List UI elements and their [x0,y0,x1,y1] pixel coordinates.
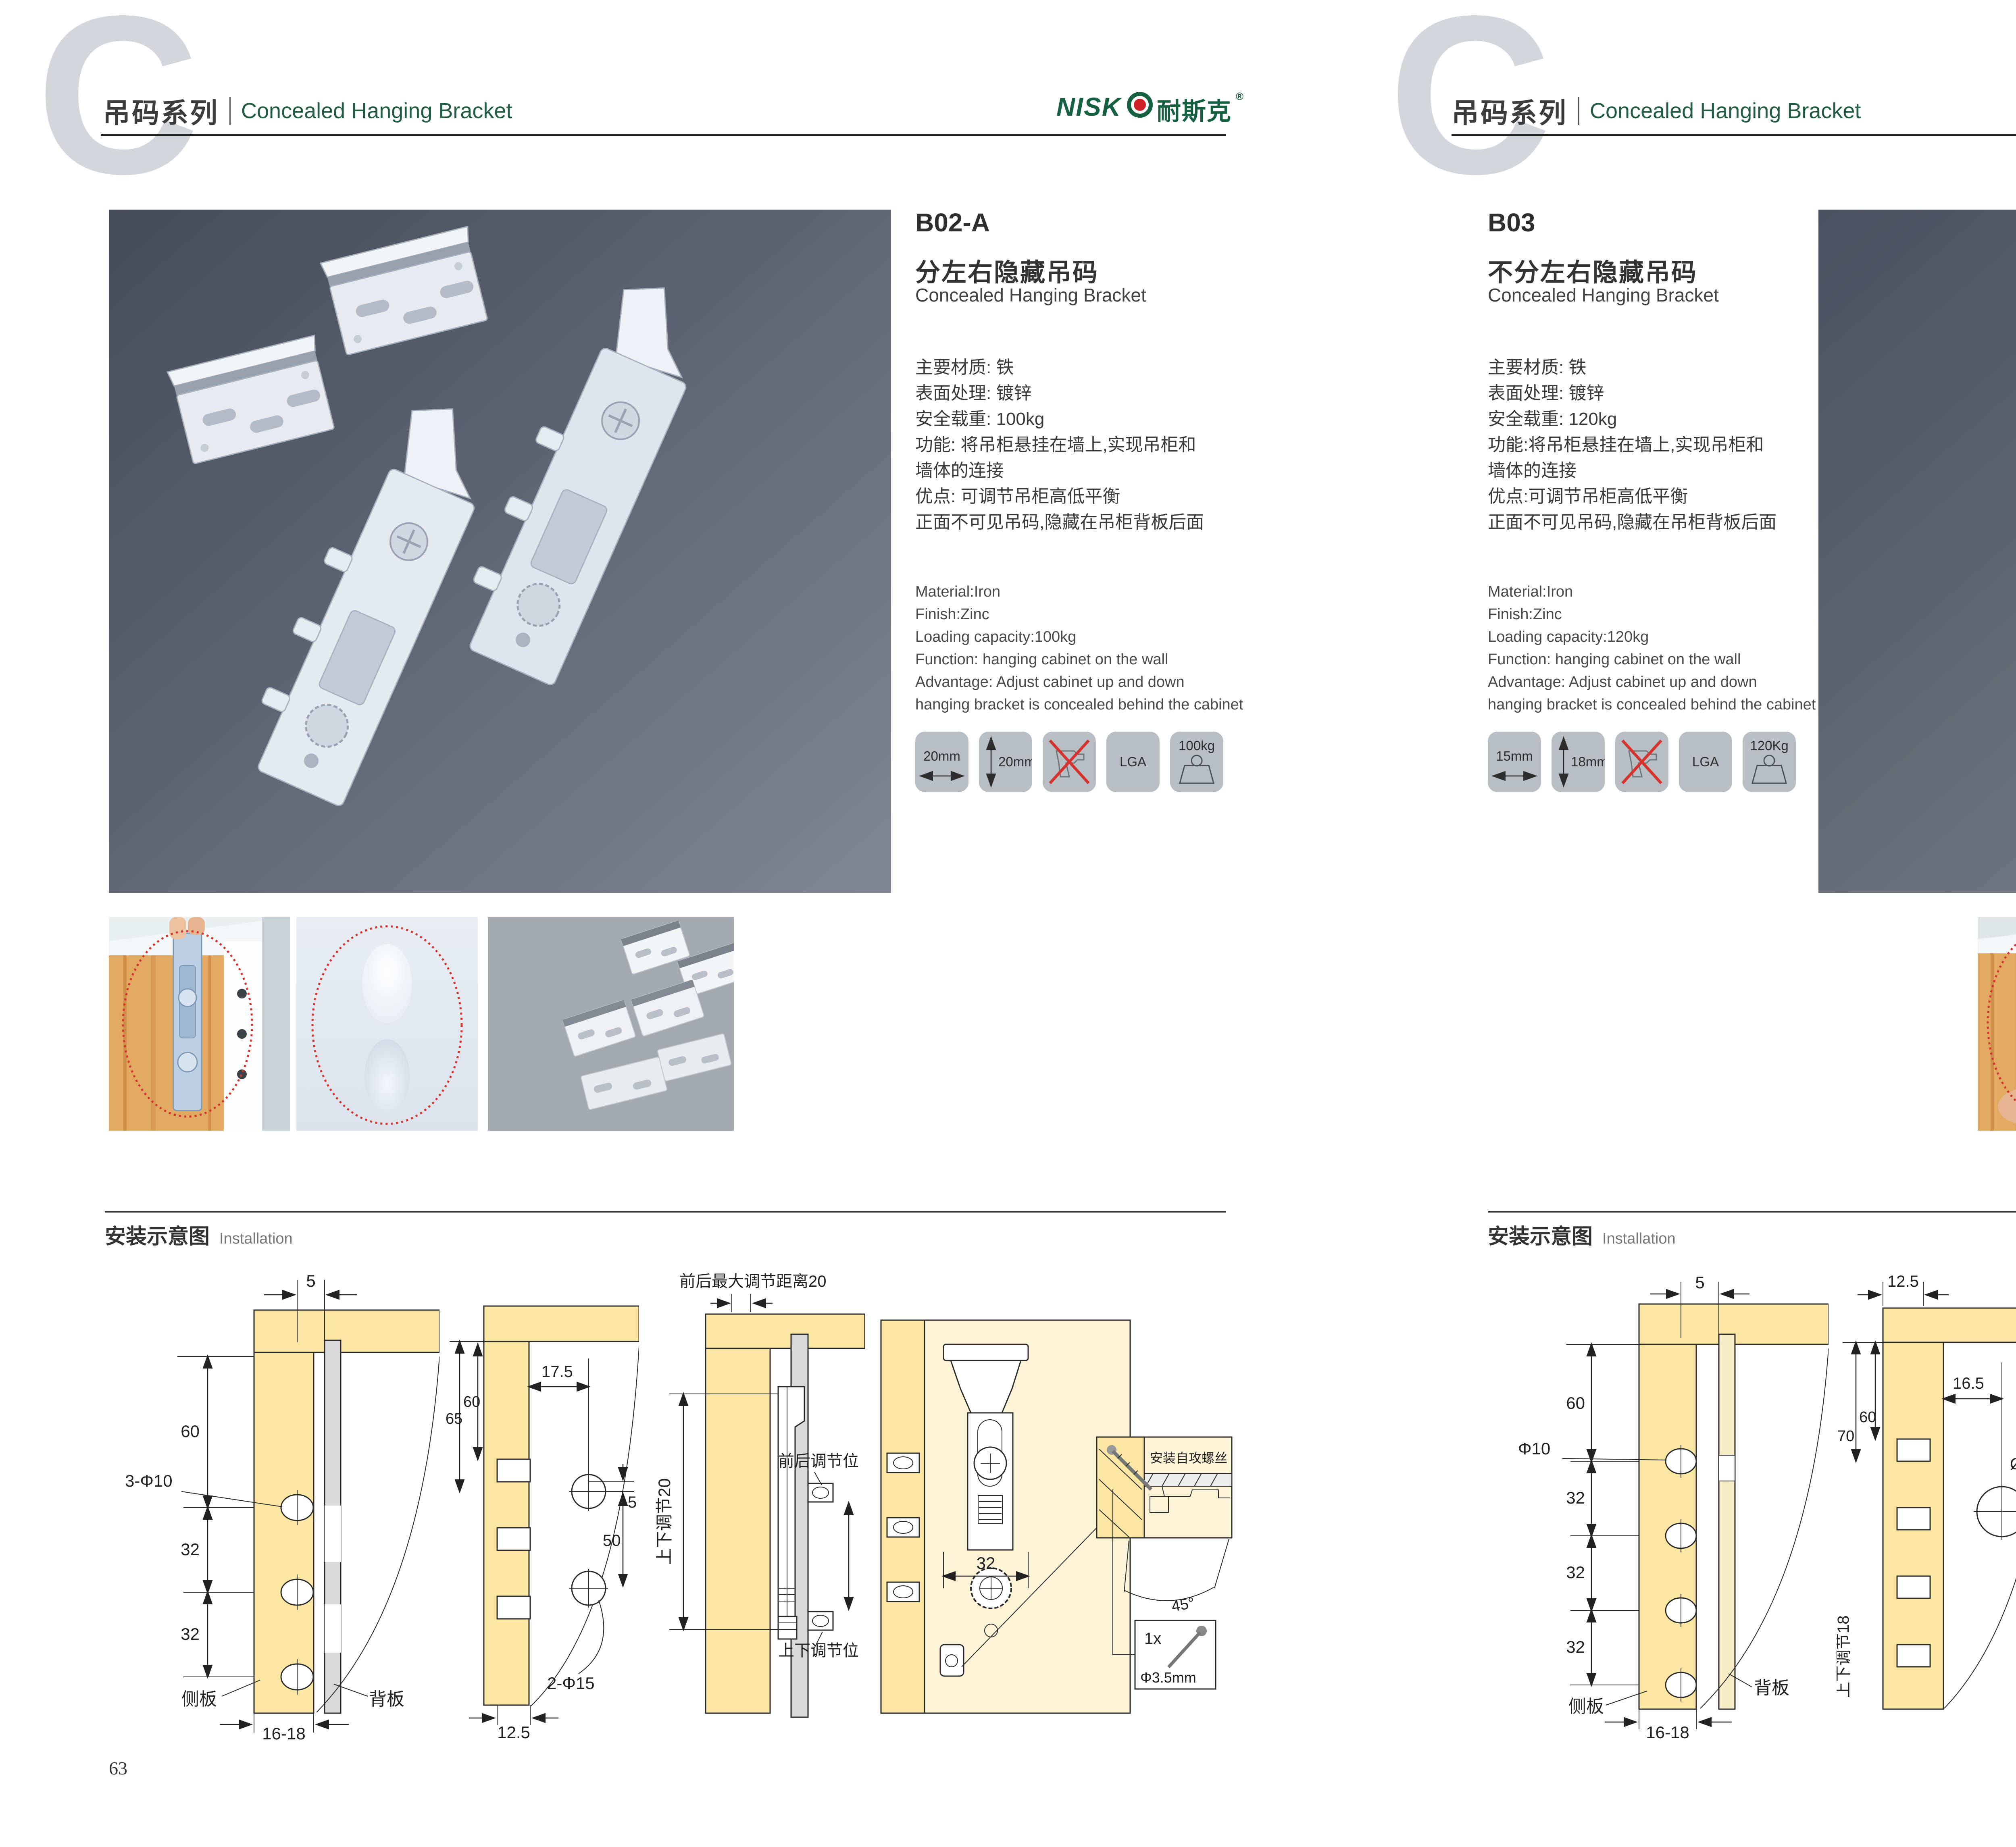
product-photo-b02a [109,210,891,893]
spec-line: 墙体的连接 [1488,458,1810,484]
registered-mark: ® [1236,90,1243,103]
svg-text:LGA: LGA [1120,754,1146,769]
badge-load: 100kg [1170,732,1223,792]
spec-line: Material:Iron [915,580,1246,603]
brand-logo: NISK 耐斯克 ® [1056,92,1243,127]
spec-line: 优点: 可调节吊柜高低平衡 [915,484,1238,510]
svg-text:背板: 背板 [369,1689,404,1709]
thumb-mounted-illustration [109,917,290,1131]
spec-line: Loading capacity:120kg [1488,626,1818,648]
spec-line: Function: hanging cabinet on the wall [915,648,1246,671]
svg-text:5: 5 [628,1493,637,1511]
svg-text:5: 5 [306,1271,315,1290]
svg-text:60: 60 [1859,1409,1876,1426]
spec-line: 安全载重: 120kg [1488,406,1810,432]
diagram-bracket-mounting: 32 安装自攻螺丝 45° 1x Φ3.5mm [871,1270,1236,1745]
lga-label: LGA [1106,732,1160,792]
spec-line: 主要材质: 铁 [1488,355,1810,381]
diagram-side-panel-drilling: 5 60 32 32 3-Φ10 16-18 侧板 背板 [121,1266,439,1741]
series-title-cn: 吊码系列 [1452,91,1568,131]
product-photo-illustration [109,210,891,893]
product-title-en: Concealed Hanging Bracket [915,284,1146,306]
svg-text:1x: 1x [1144,1630,1161,1647]
series-title-en: Concealed Hanging Bracket [1590,98,1861,123]
installation-rule [105,1211,1226,1213]
installation-title-cn: 安装示意图 [1488,1219,1593,1250]
catalog-spread: C 吊码系列 Concealed Hanging Bracket NISK 耐斯… [0,0,2016,1847]
svg-text:侧板: 侧板 [181,1689,217,1709]
svg-text:前后调节位: 前后调节位 [778,1452,859,1470]
svg-text:32: 32 [977,1554,996,1572]
svg-text:12.5: 12.5 [1887,1273,1919,1290]
thumb-concealed-illustration [296,917,478,1131]
spec-line: 功能: 将吊柜悬挂在墙上,实现吊柜和 [915,432,1238,458]
svg-text:上下调节18: 上下调节18 [1837,1616,1852,1698]
svg-text:60: 60 [181,1422,200,1441]
specs-cn: 主要材质: 铁 表面处理: 镀锌 安全载重: 100kg 功能: 将吊柜悬挂在墙… [915,355,1238,535]
badge-height: 20mm [979,732,1032,792]
spec-line: 优点:可调节吊柜高低平衡 [1488,484,1810,510]
svg-text:5: 5 [1695,1273,1704,1292]
svg-text:32: 32 [181,1540,200,1559]
badge-width: 15mm [1488,732,1541,792]
logo-cn: 耐斯克 [1157,92,1232,127]
header-rule [1452,134,2016,136]
specs-en: Material:Iron Finish:Zinc Loading capaci… [915,580,1246,716]
svg-text:Φ3.5mm: Φ3.5mm [1140,1669,1196,1686]
svg-text:65: 65 [446,1410,462,1427]
spec-line: 正面不可见吊码,隐藏在吊柜背板后面 [915,510,1238,535]
svg-text:45°: 45° [1170,1595,1196,1615]
badge-width: 20mm [915,732,968,792]
spec-line: 墙体的连接 [915,458,1238,484]
badge-no-drill [1043,732,1096,792]
svg-text:上下调节位: 上下调节位 [778,1642,859,1660]
svg-text:32: 32 [1566,1563,1585,1582]
installation-title-en: Installation [1602,1230,1676,1248]
svg-text:2-Φ15: 2-Φ15 [547,1674,595,1693]
svg-text:70: 70 [1837,1428,1854,1445]
spec-line: Loading capacity:100kg [915,626,1246,648]
svg-text:16.5: 16.5 [1953,1375,1984,1392]
svg-text:60: 60 [1566,1394,1585,1412]
svg-text:20mm: 20mm [923,749,960,763]
thumb-wall-plates [488,917,734,1131]
svg-text:17.5: 17.5 [541,1363,573,1381]
svg-text:背板: 背板 [1754,1678,1789,1698]
product-code: B03 [1488,208,1535,237]
badge-height: 18mm [1552,732,1605,792]
svg-text:安装自攻螺丝: 安装自攻螺丝 [1150,1451,1227,1465]
svg-text:Ø 25: Ø 25 [2010,1455,2016,1473]
lga-label: LGA [1679,732,1732,792]
svg-text:12.5: 12.5 [497,1723,530,1741]
product-title-en: Concealed Hanging Bracket [1488,284,1719,306]
weight-icon: 100kg [1170,732,1223,792]
no-drill-icon [1615,732,1668,792]
product-title-cn: 分左右隐藏吊码 [915,252,1099,288]
horizontal-arrow-icon: 20mm [915,732,968,792]
svg-text:32: 32 [1566,1488,1585,1507]
badge-certification: LGA [1106,732,1160,792]
spec-line: 安全载重: 100kg [915,406,1238,432]
svg-text:16-18: 16-18 [262,1724,305,1741]
product-photo-b03 [1818,210,2016,893]
spec-line: Advantage: Adjust cabinet up and down [1488,671,1818,693]
thumb-plates-illustration [488,917,734,1131]
svg-text:3-Φ10: 3-Φ10 [125,1471,173,1490]
header-rule [101,134,1226,136]
page-number: 63 [109,1758,127,1779]
logo-latin: NISK [1056,92,1121,122]
svg-text:20mm: 20mm [998,754,1032,769]
spec-line: Advantage: Adjust cabinet up and down [915,671,1246,693]
diagram-side-panel-drilling: 5 60 32 32 32 Φ10 16-18 侧板 背板 [1506,1266,1829,1741]
badge-no-drill [1615,732,1668,792]
spec-line: Finish:Zinc [1488,603,1818,626]
spec-line: 表面处理: 镀锌 [1488,381,1810,406]
series-title-cn: 吊码系列 [103,91,219,131]
svg-text:50: 50 [603,1532,621,1550]
series-header: 吊码系列 Concealed Hanging Bracket [103,91,512,131]
svg-text:LGA: LGA [1692,754,1719,769]
svg-text:Φ10: Φ10 [1518,1439,1550,1458]
divider [1578,97,1579,125]
installation-title-cn: 安装示意图 [105,1219,210,1250]
svg-text:60: 60 [463,1394,480,1410]
thumb-mounted-bracket [109,917,290,1131]
badge-certification: LGA [1679,732,1732,792]
diagram-back-panel-hole: 12.5 70 60 16.5 Ø 25 10 上下调节18 [1837,1266,2016,1741]
thumb-mounted-illustration [1978,917,2016,1131]
no-drill-icon [1043,732,1096,792]
spec-line: hanging bracket is concealed behind the … [915,693,1246,716]
spec-line: 表面处理: 镀锌 [915,381,1238,406]
svg-text:16-18: 16-18 [1646,1723,1689,1741]
vertical-arrow-icon: 18mm [1552,732,1605,792]
svg-text:32: 32 [181,1624,200,1643]
weight-icon: 120Kg [1743,732,1796,792]
series-title-en: Concealed Hanging Bracket [241,98,512,123]
vertical-arrow-icon: 20mm [979,732,1032,792]
svg-text:120Kg: 120Kg [1750,738,1788,753]
svg-text:侧板: 侧板 [1568,1697,1604,1716]
specs-cn: 主要材质: 铁 表面处理: 镀锌 安全载重: 120kg 功能:将吊柜悬挂在墙上… [1488,355,1810,535]
svg-text:15mm: 15mm [1496,749,1533,763]
badge-load: 120Kg [1743,732,1796,792]
product-code: B02-A [915,208,990,237]
logo-target-icon [1127,92,1153,118]
specs-en: Material:Iron Finish:Zinc Loading capaci… [1488,580,1818,716]
spec-line: 功能:将吊柜悬挂在墙上,实现吊柜和 [1488,432,1810,458]
thumb-concealed-view [296,917,478,1131]
svg-text:上下调节20: 上下调节20 [655,1478,674,1565]
feature-badges: 15mm 18mm LGA 120Kg [1488,732,1796,792]
diagram-back-panel-holes: 65 60 17.5 5 50 2-Φ15 12.5 [446,1266,639,1741]
spec-line: hanging bracket is concealed behind the … [1488,693,1818,716]
series-header: 吊码系列 Concealed Hanging Bracket [1452,91,1861,131]
svg-text:32: 32 [1566,1637,1585,1656]
spec-line: 正面不可见吊码,隐藏在吊柜背板后面 [1488,510,1810,535]
installation-title-en: Installation [219,1230,293,1248]
svg-text:100kg: 100kg [1179,738,1215,753]
horizontal-arrow-icon: 15mm [1488,732,1541,792]
spec-line: Finish:Zinc [915,603,1246,626]
product-photo-illustration [1818,210,2016,893]
spec-line: Material:Iron [1488,580,1818,603]
diagram-adjustment-section: 前后最大调节距离20 上下调节20 前后调节位 上下调节位 [645,1266,865,1741]
svg-text:18mm: 18mm [1571,754,1605,769]
spec-line: Function: hanging cabinet on the wall [1488,648,1818,671]
thumb-mounted-bracket [1978,917,2016,1131]
installation-header: 安装示意图 Installation [105,1219,293,1250]
svg-text:前后最大调节距离20: 前后最大调节距离20 [679,1273,827,1290]
spec-line: 主要材质: 铁 [915,355,1238,381]
product-title-cn: 不分左右隐藏吊码 [1488,252,1697,288]
divider [229,97,231,125]
installation-rule [1488,1211,2016,1213]
feature-badges: 20mm 20mm LGA 100kg [915,732,1223,792]
installation-header: 安装示意图 Installation [1488,1219,1676,1250]
